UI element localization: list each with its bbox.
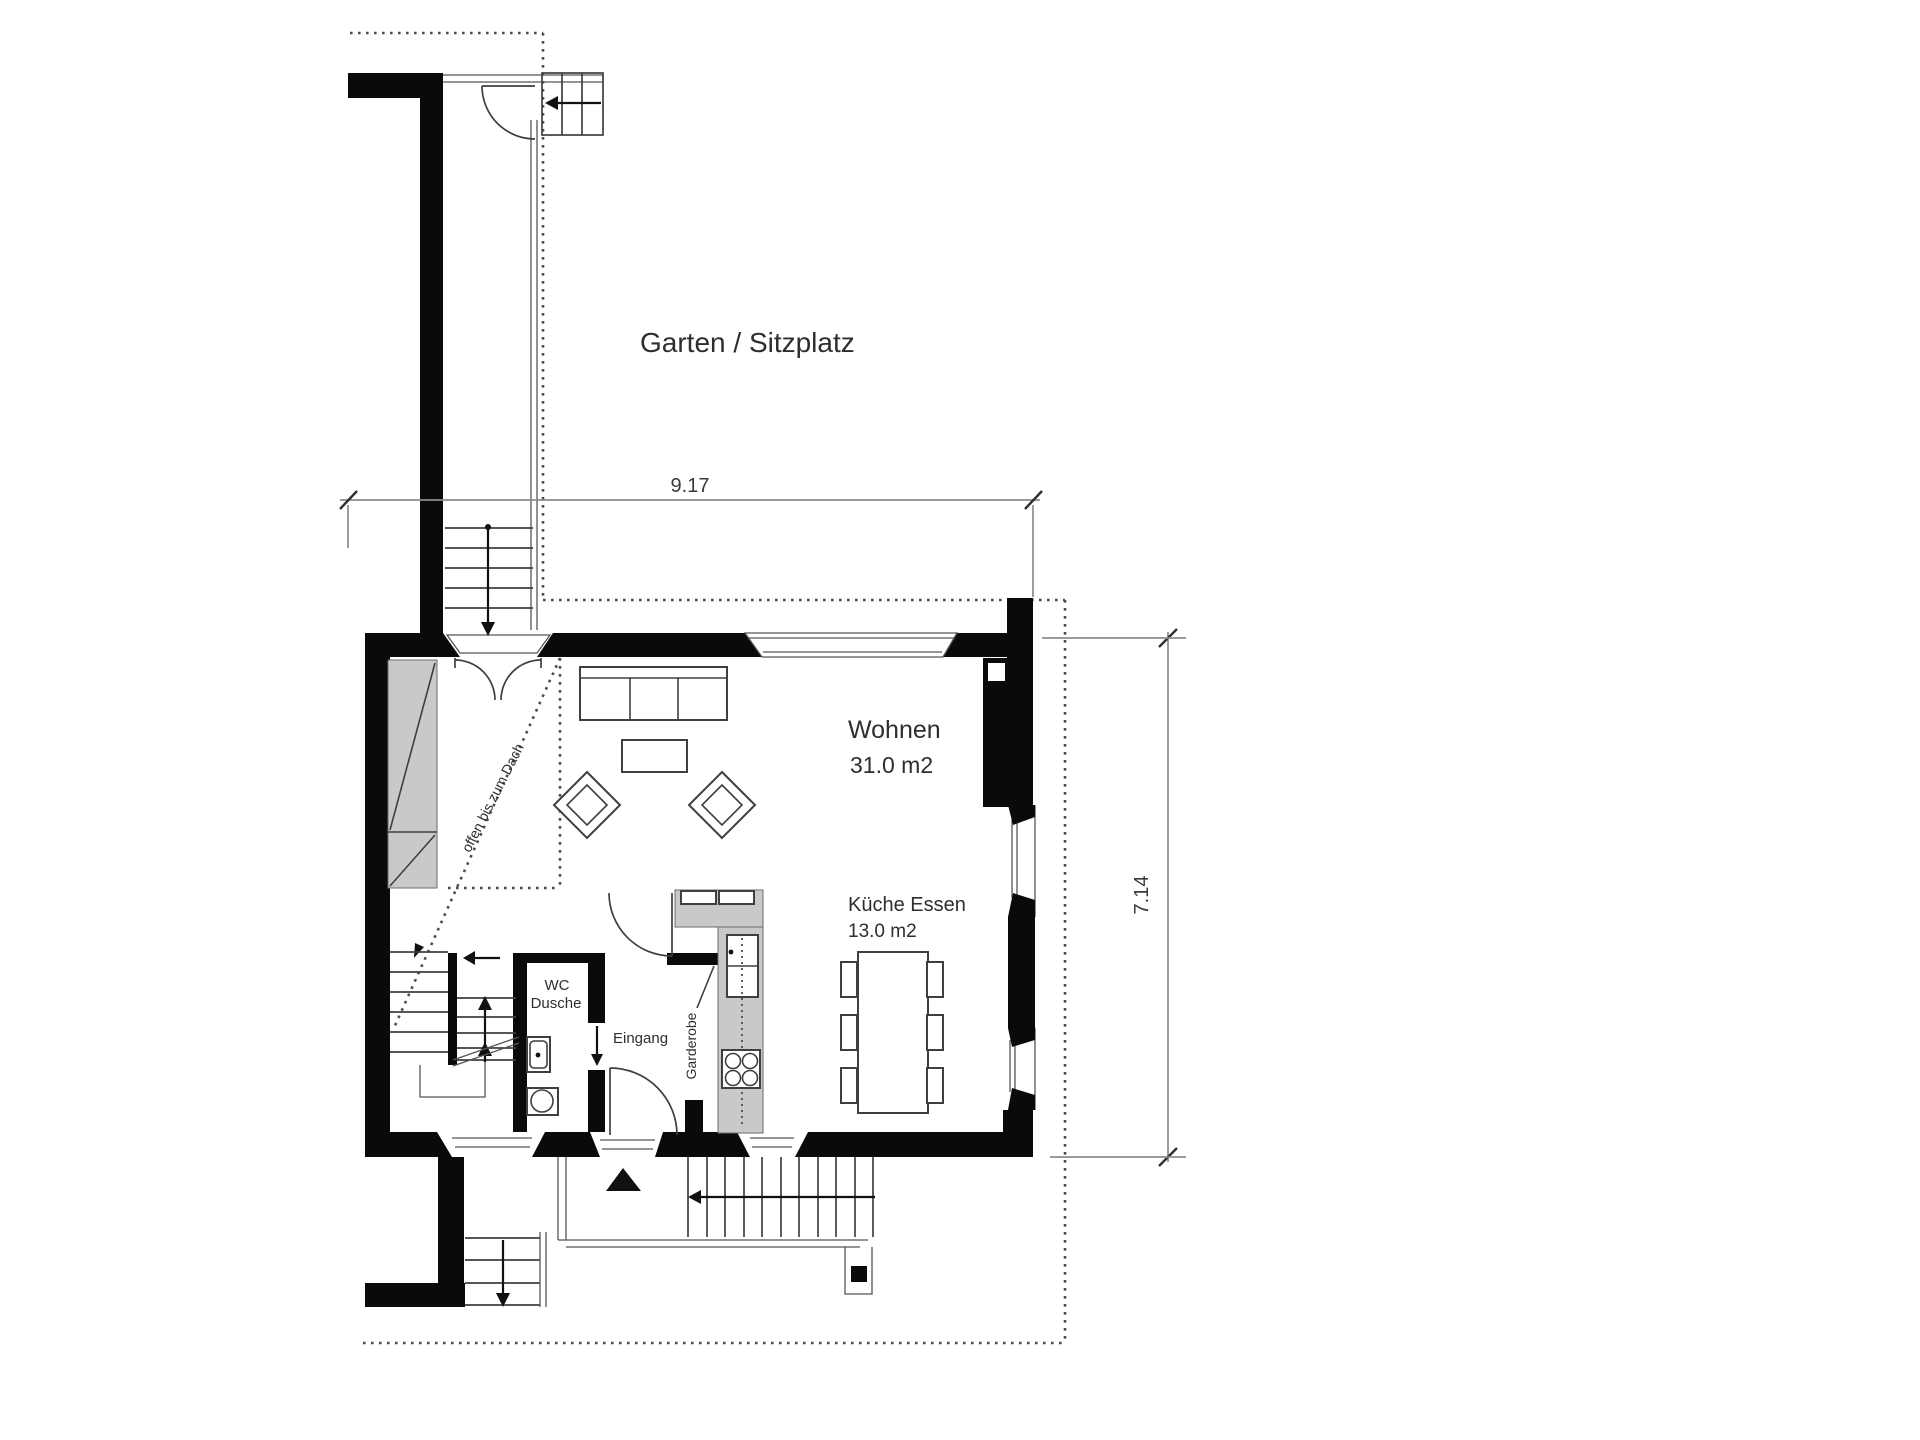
floor-plan-page: 9.17 7.14 Garten / Sitzplatz Wohnen 31.0… — [0, 0, 1920, 1440]
kitchen-counter — [718, 927, 763, 1133]
entrance-marker-triangle — [606, 1168, 641, 1191]
kitchen-area: 13.0 m2 — [848, 921, 917, 942]
dimension-width-label: 9.17 — [671, 475, 710, 497]
living-room-area: 31.0 m2 — [850, 752, 933, 778]
garden-stair — [445, 524, 533, 636]
exterior-south-stair — [558, 1157, 875, 1294]
floor-plan-drawing: 9.17 7.14 Garten / Sitzplatz Wohnen 31.0… — [0, 0, 1920, 1440]
entrance-label: Eingang — [613, 1030, 668, 1047]
wc-label-line2: Dusche — [531, 995, 582, 1012]
armchair-left — [554, 772, 620, 838]
kitchen-label: Küche Essen — [848, 894, 966, 916]
sofa — [580, 667, 727, 720]
toilet-icon — [527, 1088, 558, 1115]
dining-table — [841, 952, 943, 1113]
garden-label: Garten / Sitzplatz — [640, 327, 855, 358]
exterior-west-stair — [465, 1232, 546, 1307]
wc-label-line1: WC — [545, 977, 570, 994]
wardrobe-west — [388, 660, 437, 888]
dimension-depth-label: 7.14 — [1131, 876, 1153, 915]
coffee-table — [622, 740, 687, 772]
terrace-edge-lines — [443, 75, 603, 630]
living-room-label: Wohnen — [848, 716, 941, 744]
dimension-vertical: 7.14 — [1042, 629, 1186, 1166]
armchair-right — [689, 772, 755, 838]
dimension-horizontal: 9.17 — [340, 475, 1042, 597]
washbasin-icon — [527, 1037, 550, 1072]
wardrobe-label: Garderobe — [683, 1012, 699, 1079]
open-to-roof-label: offen bis zum Dach — [458, 741, 527, 855]
